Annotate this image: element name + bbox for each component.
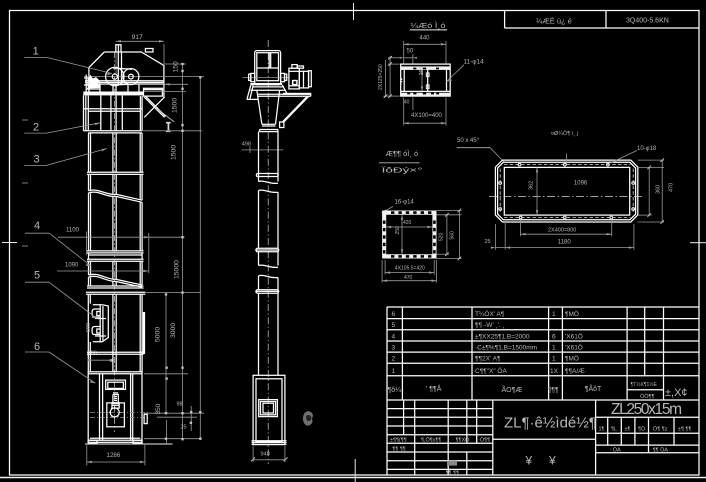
svg-text:1: 1 xyxy=(552,311,556,318)
svg-text:5: 5 xyxy=(392,322,396,329)
svg-text:5000: 5000 xyxy=(155,327,162,342)
svg-text:16-φ14: 16-φ14 xyxy=(395,200,415,206)
svg-text:·C±¶%¶1.B=1500mm: ·C±¶%¶1.B=1500mm xyxy=(475,345,537,352)
svg-text:Æ¶¶ óÌ¸ ó: Æ¶¶ óÌ¸ ó xyxy=(386,149,419,158)
svg-text:2X125=250: 2X125=250 xyxy=(378,64,384,90)
svg-text:11-φ14: 11-φ14 xyxy=(463,59,484,66)
svg-text:¶¶·-W' ¸'. ¸: ¶¶·-W' ¸'. ¸ xyxy=(475,322,505,329)
svg-text:±¶XX25¶1.B=2000: ±¶XX25¶1.B=2000 xyxy=(475,333,530,340)
svg-text:470: 470 xyxy=(669,183,675,192)
svg-text:40: 40 xyxy=(404,99,410,105)
svg-text:295: 295 xyxy=(419,66,425,75)
svg-text:25: 25 xyxy=(485,239,491,245)
svg-text:¶Ö: ¶Ö xyxy=(638,426,646,433)
svg-text:¶ÃôT: ¶ÃôT xyxy=(585,384,602,393)
svg-text:1: 1 xyxy=(392,368,396,375)
svg-text:¶MÖ: ¶MÖ xyxy=(565,355,579,363)
svg-text:4: 4 xyxy=(34,220,40,232)
svg-text:1¶: 1¶ xyxy=(599,427,605,433)
svg-text:1: 1 xyxy=(33,46,39,58)
svg-text:560: 560 xyxy=(450,231,456,240)
svg-text:440: 440 xyxy=(420,35,431,41)
svg-text:ÏôÐý×°: ÏôÐý×° xyxy=(382,166,423,175)
svg-text:6: 6 xyxy=(34,341,40,353)
svg-text:ÖÖ¶¶: ÖÖ¶¶ xyxy=(640,393,655,400)
svg-text:¶¶2X' A¶: ¶¶2X' A¶ xyxy=(475,356,501,363)
svg-text:1100: 1100 xyxy=(66,227,80,233)
svg-text:'X61Ö: 'X61Ö xyxy=(565,344,583,352)
svg-text:350: 350 xyxy=(155,403,162,414)
svg-text:4: 4 xyxy=(392,333,396,340)
svg-text:¥: ¥ xyxy=(525,454,533,468)
svg-text:15000: 15000 xyxy=(174,260,181,279)
svg-text:900: 900 xyxy=(88,351,97,357)
svg-text:2X400=800: 2X400=800 xyxy=(548,227,576,233)
svg-text:4X105.5=420: 4X105.5=420 xyxy=(395,265,425,271)
svg-text:3: 3 xyxy=(34,154,40,166)
svg-text:362: 362 xyxy=(529,181,535,190)
svg-text:150: 150 xyxy=(173,61,180,73)
svg-text:25: 25 xyxy=(181,424,187,430)
svg-text:6: 6 xyxy=(552,333,556,340)
svg-text:±,X¢: ±,X¢ xyxy=(665,387,688,399)
svg-text:±¶: ±¶ xyxy=(625,427,631,433)
svg-text:1500: 1500 xyxy=(171,145,178,160)
svg-text:1X: 1X xyxy=(550,368,559,375)
svg-text:3000: 3000 xyxy=(170,323,177,338)
svg-text:ZL250x15m: ZL250x15m xyxy=(611,401,682,418)
svg-text:4X100=400: 4X100=400 xyxy=(411,113,443,119)
svg-text:¶¶ ¶¶: ¶¶ ¶¶ xyxy=(392,446,405,452)
svg-text:¶ô¼: ¶ô¼ xyxy=(388,387,402,394)
svg-text:¼Æó Ì¸ó: ¼Æó Ì¸ó xyxy=(411,21,446,30)
svg-text:10-φ18: 10-φ18 xyxy=(637,146,657,152)
svg-text:¼ÆÈ ù¿ é: ¼ÆÈ ù¿ é xyxy=(536,17,572,26)
svg-text:Ö¶ ¶z: Ö¶ ¶z xyxy=(653,426,668,433)
svg-text:250: 250 xyxy=(395,226,401,235)
svg-text:¶¶A/Æ·: ¶¶A/Æ· xyxy=(565,368,587,375)
svg-text:¶MÖ: ¶MÖ xyxy=(565,310,579,318)
svg-text:¶L: ¶L xyxy=(611,427,617,433)
svg-text:¥: ¥ xyxy=(548,454,556,468)
svg-text:498: 498 xyxy=(242,141,251,147)
svg-text:±¶ ¶¶: ±¶ ¶¶ xyxy=(678,427,691,433)
svg-text:520: 520 xyxy=(439,232,445,241)
svg-text:50: 50 xyxy=(407,49,414,55)
svg-text:' ¶¶Å: ' ¶¶Å xyxy=(426,384,442,393)
svg-text:1090: 1090 xyxy=(65,262,79,268)
svg-text:948: 948 xyxy=(261,452,270,458)
svg-text:¤Ø¼Ö¶ ì¸ j: ¤Ø¼Ö¶ ì¸ j xyxy=(551,130,578,137)
svg-text:98: 98 xyxy=(177,402,183,408)
svg-text:1096: 1096 xyxy=(574,180,588,186)
svg-text:'X61Ö: 'X61Ö xyxy=(565,332,583,340)
svg-text:917: 917 xyxy=(132,34,144,41)
svg-text:2: 2 xyxy=(33,121,39,133)
svg-text:±¶¶(¶¶: ±¶¶(¶¶ xyxy=(390,438,407,444)
svg-text:ÃO¶Æ: ÃO¶Æ xyxy=(502,385,523,394)
svg-text:470: 470 xyxy=(404,275,413,281)
svg-text:1: 1 xyxy=(552,345,556,352)
svg-text:5: 5 xyxy=(34,269,40,281)
svg-text:¶¶ ÖA: ¶¶ ÖA xyxy=(653,447,669,454)
svg-text:¶¶XÖ: ¶¶XÖ xyxy=(456,437,471,444)
svg-text:3Q400-5.6KN: 3Q400-5.6KN xyxy=(626,18,669,25)
svg-text:1286: 1286 xyxy=(107,452,121,459)
svg-text:¶¶¶: ¶¶¶ xyxy=(548,387,560,394)
svg-text:·Ö¶¶: ·Ö¶¶ xyxy=(478,437,490,444)
svg-text:· ÖA: · ÖA xyxy=(609,447,621,454)
svg-text:500: 500 xyxy=(86,323,92,332)
svg-text:¶,Ö¶x¶¶: ¶,Ö¶x¶¶ xyxy=(421,437,441,444)
svg-text:ZL¶·ê½ìdé½¶: ZL¶·ê½ìdé½¶ xyxy=(504,415,597,432)
svg-text:2: 2 xyxy=(392,356,396,363)
svg-text:420: 420 xyxy=(403,220,412,226)
svg-text:1500: 1500 xyxy=(172,98,179,113)
svg-text:1180: 1180 xyxy=(558,240,572,246)
svg-text:50 x 45°: 50 x 45° xyxy=(457,138,480,144)
svg-text:1: 1 xyxy=(552,356,556,363)
svg-text:3: 3 xyxy=(392,345,396,352)
svg-text:T¼ÖX' A¶: T¼ÖX' A¶ xyxy=(475,310,505,318)
svg-text:360: 360 xyxy=(656,185,662,194)
svg-text:C¶¶"X" ÖA: C¶¶"X" ÖA xyxy=(475,367,507,375)
svg-text:¶T½X¶1½E: ¶T½X¶1½E xyxy=(631,381,658,388)
svg-text:6: 6 xyxy=(392,311,396,318)
svg-text:¶¶ ¶¶: ¶¶ ¶¶ xyxy=(446,470,459,476)
